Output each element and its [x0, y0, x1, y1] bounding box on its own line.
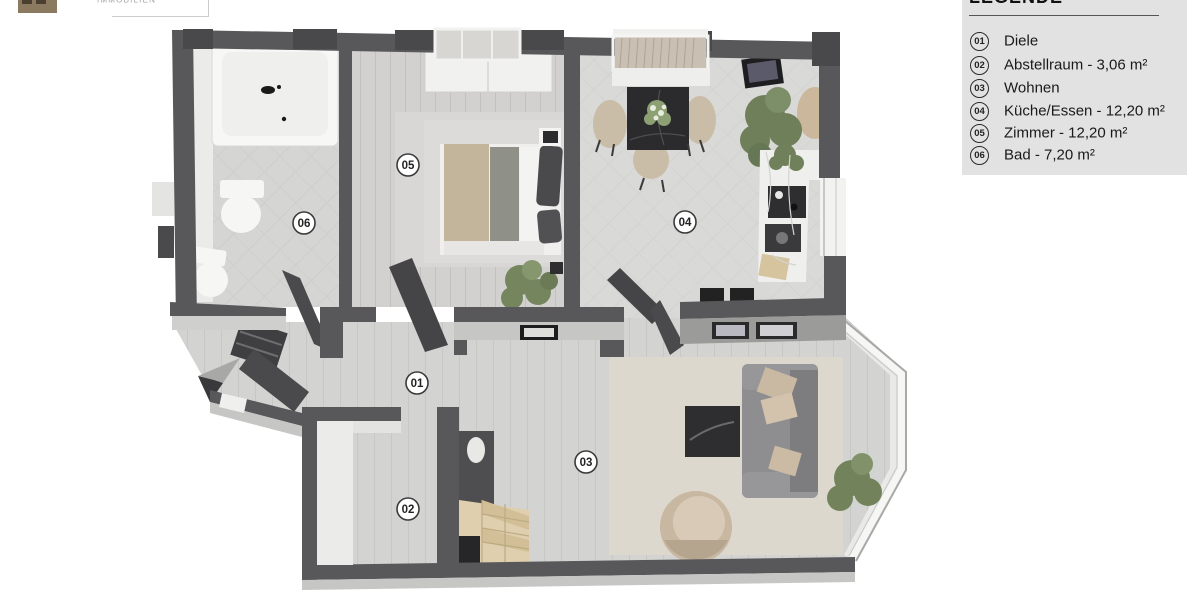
svg-text:03: 03 — [580, 457, 593, 469]
svg-text:01: 01 — [411, 378, 424, 390]
svg-text:02: 02 — [402, 504, 415, 516]
svg-text:05: 05 — [402, 160, 415, 172]
svg-text:06: 06 — [298, 218, 311, 230]
svg-text:04: 04 — [679, 217, 692, 229]
